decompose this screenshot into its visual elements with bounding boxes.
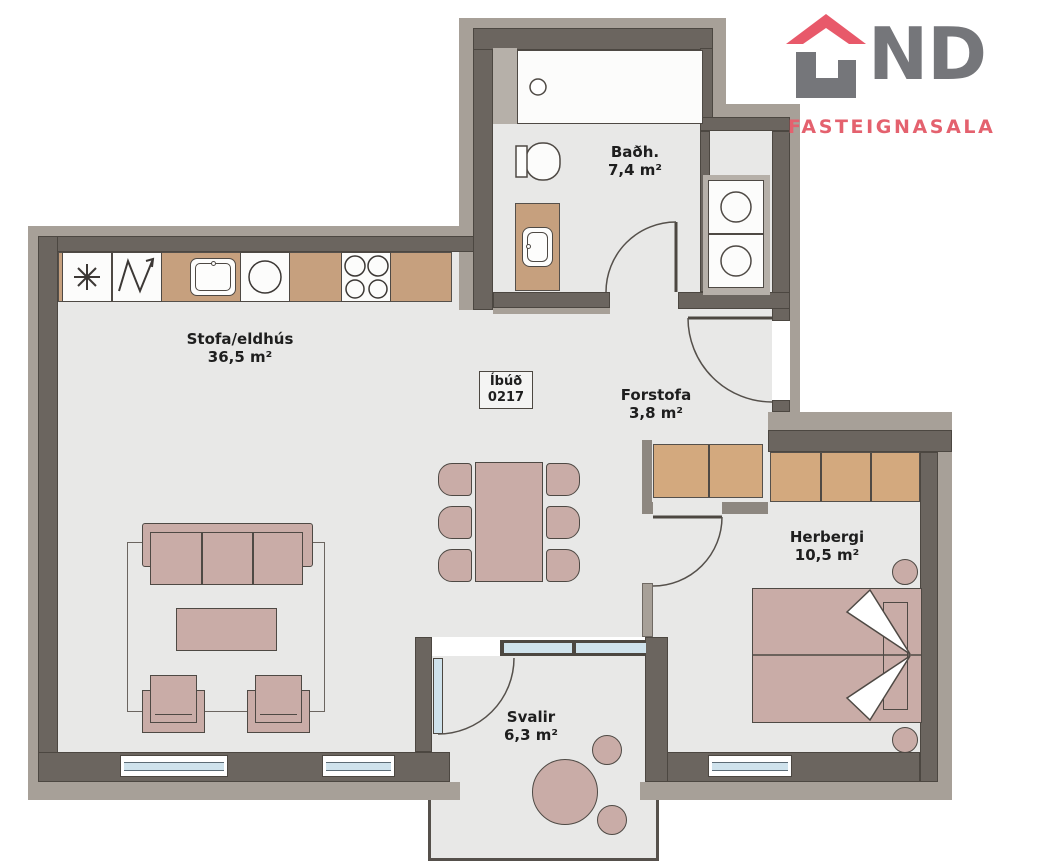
dining-chair xyxy=(438,549,472,582)
wardrobe-divider xyxy=(870,453,872,501)
room-area: 7,4 m² xyxy=(608,161,662,179)
logo-roof xyxy=(786,14,866,44)
armchair-seat-line xyxy=(260,714,297,716)
wall-closet-bottom-right xyxy=(722,502,768,514)
wall-balcony-right xyxy=(645,637,668,782)
wall-bedroom-right xyxy=(920,452,938,782)
wall-balcony-left xyxy=(415,637,432,752)
label-bathroom: Baðh. 7,4 m² xyxy=(608,143,662,179)
wall-band-top xyxy=(28,226,473,236)
coffee-table xyxy=(176,608,277,651)
kitchen-sink-basin xyxy=(195,263,231,291)
wall-band-bedroom-top xyxy=(768,412,952,430)
label-balcony: Svalir 6,3 m² xyxy=(504,708,558,744)
dining-chair xyxy=(546,506,580,539)
room-name: Svalir xyxy=(504,708,558,726)
wall-step xyxy=(700,117,790,131)
wardrobe-divider xyxy=(820,453,822,501)
label-hallway: Forstofa 3,8 m² xyxy=(621,386,691,422)
balcony-stool xyxy=(592,735,622,765)
fridge xyxy=(112,252,162,302)
room-name: Herbergi xyxy=(790,528,864,546)
bed-runner xyxy=(883,602,908,710)
wall-entry-below-door xyxy=(772,400,790,412)
balcony-railing-left xyxy=(428,800,431,860)
room-area: 36,5 m² xyxy=(187,348,294,366)
room-name: Forstofa xyxy=(621,386,691,404)
balcony-railing-right xyxy=(656,800,659,860)
brand-logo: ND FASTEIGNASALA xyxy=(786,12,1008,142)
logo-walls xyxy=(796,52,856,98)
wall-living-top xyxy=(38,236,475,252)
closet-divider xyxy=(708,445,710,497)
dining-chair xyxy=(546,549,580,582)
wall-stub-bedroom-left xyxy=(642,583,653,637)
wall-bath-left xyxy=(473,28,493,310)
window-bedroom xyxy=(708,755,792,777)
armchair-seat xyxy=(150,675,197,723)
dryer xyxy=(708,234,764,288)
bath-sink xyxy=(522,227,553,267)
room-name: Stofa/eldhús xyxy=(187,330,294,348)
sofa-cushion-divider xyxy=(252,533,254,584)
wall-band-bath-left xyxy=(459,18,473,310)
oven xyxy=(240,252,290,302)
wall-band-entry-right xyxy=(790,117,800,412)
room-area: 6,3 m² xyxy=(504,726,558,744)
window-living-2 xyxy=(322,755,395,777)
cooktop xyxy=(341,252,391,302)
room-area: 3,8 m² xyxy=(621,404,691,422)
nightstand xyxy=(892,559,918,585)
wall-band-left xyxy=(28,226,38,800)
armchair-seat xyxy=(255,675,302,723)
wall-bedroom-top xyxy=(768,430,952,452)
label-bedroom: Herbergi 10,5 m² xyxy=(790,528,864,564)
wall-living-left xyxy=(38,236,58,782)
lind-house-logo-icon xyxy=(786,14,866,106)
balcony-railing-bottom xyxy=(428,858,659,861)
floor-plan-page: Stofa/eldhús 36,5 m² Baðh. 7,4 m² Forsto… xyxy=(0,0,1040,867)
wall-band-bottom-left xyxy=(28,782,460,800)
bedroom-wardrobe xyxy=(770,452,920,502)
bath-plumbing-lining xyxy=(493,48,517,124)
unit-number-box: Íbúð 0217 xyxy=(479,371,533,409)
window-glazing xyxy=(326,762,391,771)
hallway-closet xyxy=(653,444,763,498)
wall-band-bedroom-bottom xyxy=(640,782,952,800)
balcony-stool xyxy=(597,805,627,835)
wall-band-bath-top xyxy=(459,18,726,28)
floor-bathroom-door-threshold xyxy=(610,292,678,308)
wall-band-step-top xyxy=(700,104,800,117)
sofa-seat xyxy=(150,532,303,585)
glass-mullion xyxy=(572,643,576,653)
dining-table xyxy=(475,462,543,582)
window-glazing xyxy=(124,762,224,771)
window-glazing xyxy=(712,762,788,771)
room-area: 10,5 m² xyxy=(790,546,864,564)
bath-faucet xyxy=(526,244,531,249)
wall-band-bedroom-right xyxy=(938,412,952,800)
label-living-room: Stofa/eldhús 36,5 m² xyxy=(187,330,294,366)
armchair-seat-line xyxy=(155,714,192,716)
glass-mullion xyxy=(500,643,504,653)
dining-chair xyxy=(438,463,472,496)
balcony-door-leaf xyxy=(433,658,443,734)
washer xyxy=(708,180,764,234)
brand-subtitle: FASTEIGNASALA xyxy=(788,116,995,138)
wall-closet-bottom-left xyxy=(642,502,653,514)
balcony-table xyxy=(532,759,598,825)
room-name: Baðh. xyxy=(608,143,662,161)
balcony-glass-wall xyxy=(500,640,646,656)
freezer xyxy=(62,252,112,302)
window-living-1 xyxy=(120,755,228,777)
unit-label: Íbúð xyxy=(480,374,532,390)
unit-number: 0217 xyxy=(480,390,532,406)
shower xyxy=(517,50,703,124)
dining-chair xyxy=(546,463,580,496)
kitchen-sink xyxy=(190,258,236,296)
sofa-cushion-divider xyxy=(201,533,203,584)
nightstand xyxy=(892,727,918,753)
dining-chair xyxy=(438,506,472,539)
kitchen-faucet xyxy=(211,261,216,266)
wall-bath-bottom xyxy=(493,292,610,308)
wall-bath-top xyxy=(473,28,713,50)
brand-letters: ND xyxy=(868,18,986,90)
